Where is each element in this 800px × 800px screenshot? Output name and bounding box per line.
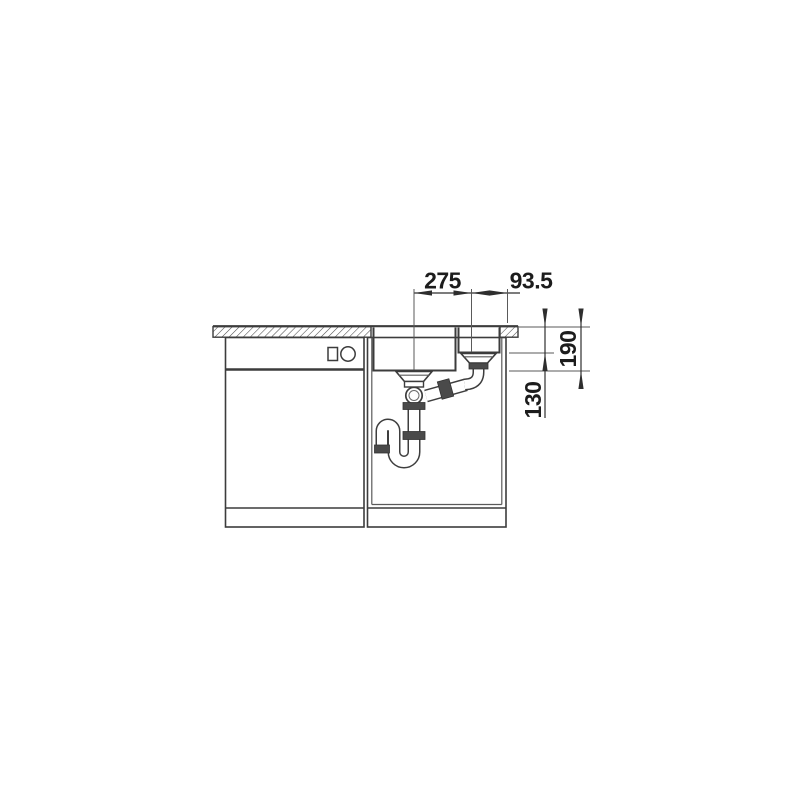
dishwasher-cabinet [226,338,365,528]
dimension-value-130: 130 [520,382,546,419]
small-strainer-nut [469,363,488,369]
arrow-left-icon [472,290,490,295]
dimension-value-275: 275 [424,268,462,294]
tailpipe-nut [403,403,425,410]
dimension-190: 190 [509,309,590,390]
small-strainer-flange [461,354,496,364]
dimension-130: 130 [509,309,554,419]
trap-outlet-nut [375,445,390,453]
arrow-up-icon [542,353,547,371]
main-strainer-flange [396,372,432,382]
trap-nut [403,432,425,440]
small-bowl [459,328,500,353]
dimension-value-93-5: 93.5 [510,268,553,294]
sink-installation-diagram: 275 93.5 190 130 [0,0,800,800]
dimension-value-190: 190 [555,331,581,368]
arrow-up-icon [578,371,583,389]
tee-fitting [406,387,422,403]
dishwasher-body [226,338,365,528]
countertop [213,326,518,337]
drawing-page: 275 93.5 190 130 [0,0,800,800]
countertop-left-slab [213,327,371,338]
control-panel-dial-icon [341,347,355,361]
arrow-right-icon [490,290,508,295]
main-strainer-neck [405,382,424,388]
dimension-93-5: 93.5 [472,268,554,324]
countertop-right-slab [500,327,518,338]
control-panel-button-icon [328,348,338,361]
arrow-down-icon [542,309,547,327]
arrow-down-icon [578,309,583,327]
